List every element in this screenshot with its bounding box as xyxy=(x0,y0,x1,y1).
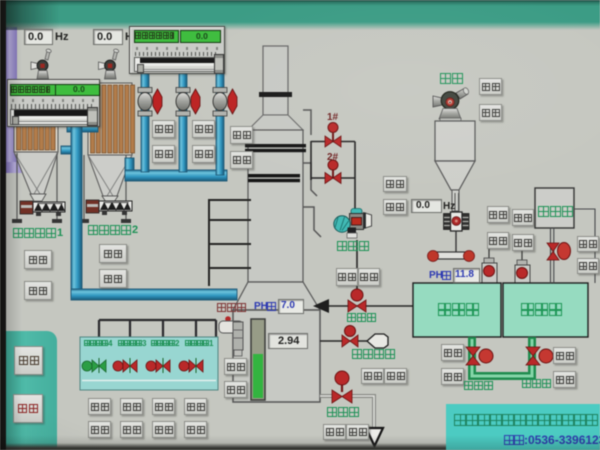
svg-text:1#: 1# xyxy=(327,112,339,123)
svg-text:2#: 2# xyxy=(327,152,339,163)
